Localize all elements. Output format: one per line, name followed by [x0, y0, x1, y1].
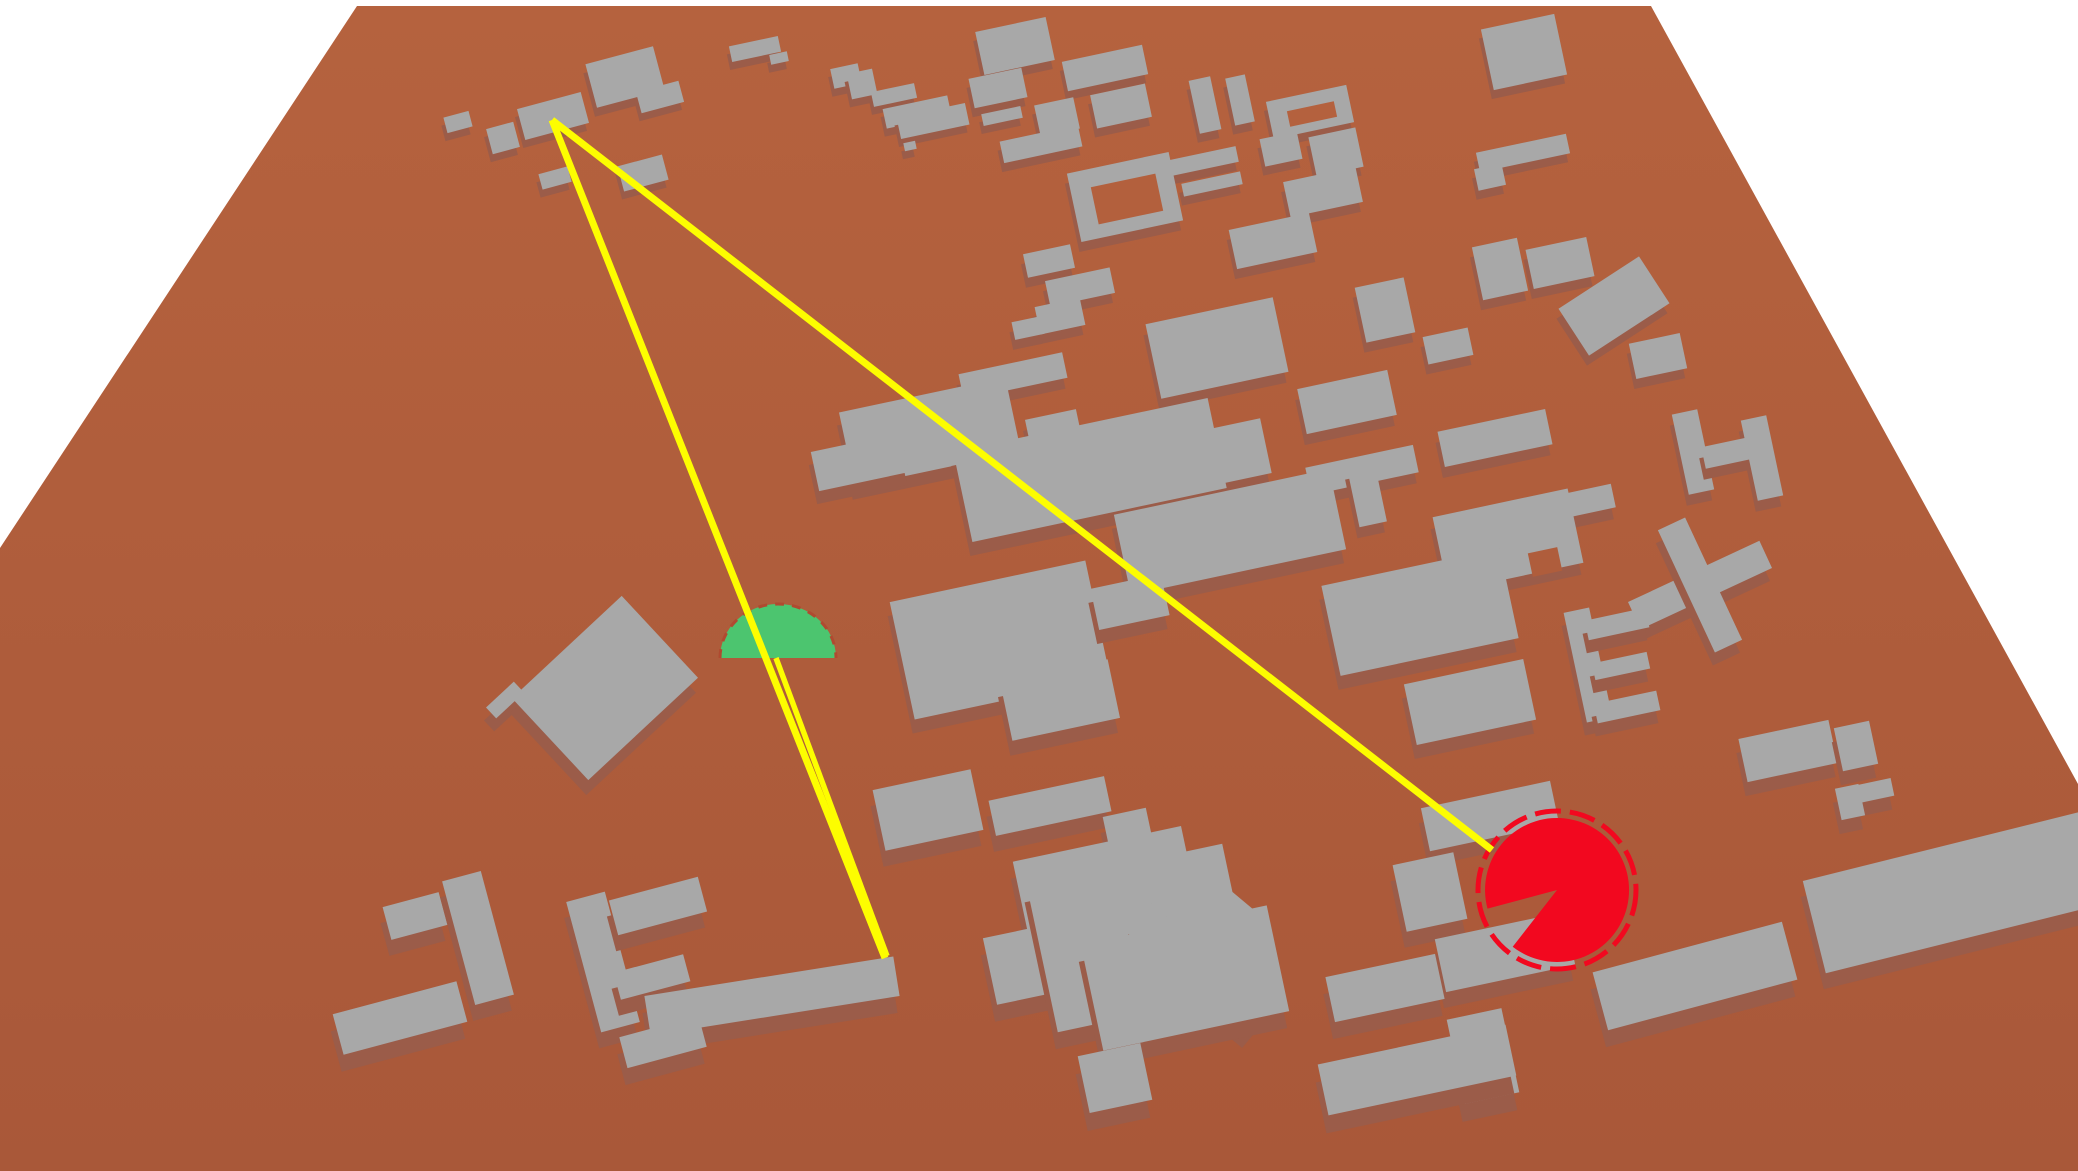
scene-viewport[interactable]: [0, 0, 2078, 1171]
scene-canvas[interactable]: [0, 0, 2078, 1171]
